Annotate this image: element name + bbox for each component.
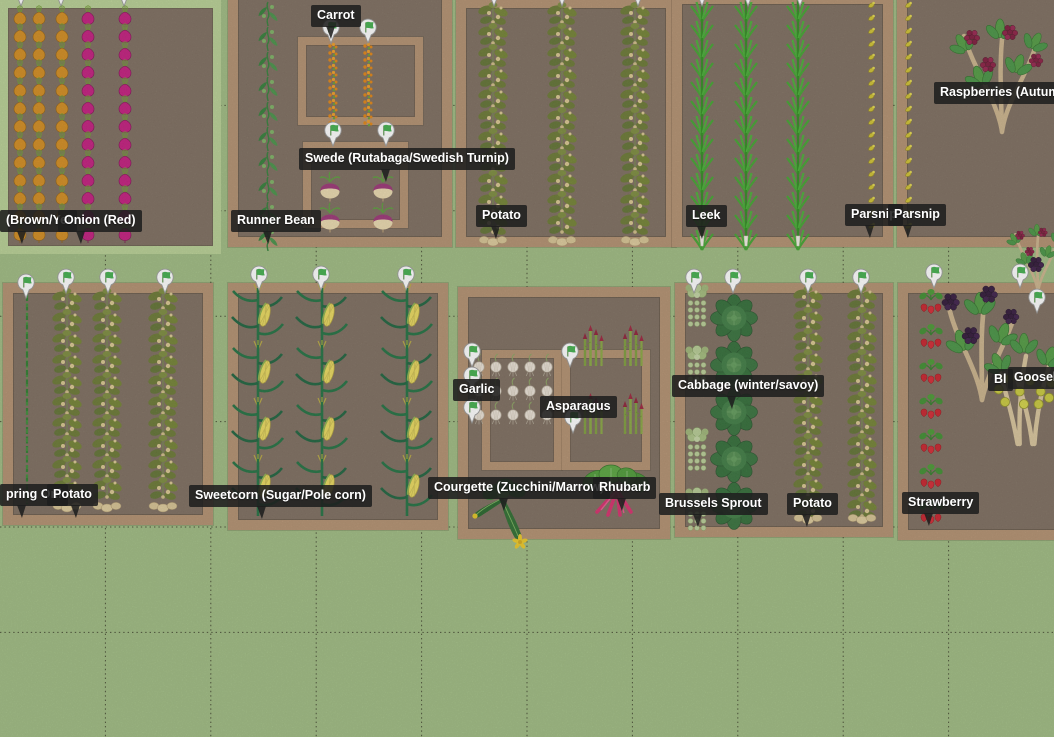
plant-row-potato[interactable] [846,286,878,520]
plant-row-onion_red[interactable] [82,5,94,243]
plant-swede[interactable] [320,172,340,202]
plant-raspberry[interactable] [1003,224,1054,292]
plant-label[interactable]: Strawberry [902,492,979,514]
plant-marker-icon[interactable] [853,269,869,293]
plant-label[interactable]: Runner Bean [231,210,321,232]
plant-label-text: Swede (Rutabaga/Swedish Turnip) [305,151,509,165]
plant-label-text: Courgette (Zucchini/Marrow) [434,480,604,494]
plant-swede[interactable] [373,203,393,233]
plant-marker-icon[interactable] [58,269,74,293]
plant-leekend[interactable] [744,236,748,246]
plant-tubers[interactable] [479,236,507,246]
plant-marker-icon[interactable] [1012,264,1028,288]
plant-marker-icon[interactable] [554,0,570,6]
plant-label-text: Onion (Red) [64,213,136,227]
plant-marker-icon[interactable] [926,264,942,288]
plant-row-potato[interactable] [792,286,824,520]
plant-swede[interactable] [373,172,393,202]
plant-asparagus[interactable] [623,325,644,366]
plant-row-onion_brown[interactable] [56,5,68,243]
plants-layer [0,0,1054,737]
plant-brussels[interactable] [686,428,709,471]
plant-label[interactable]: Potato [47,484,98,506]
plant-label-text: Potato [793,496,832,510]
plant-label[interactable]: Courgette (Zucchini/Marrow) [428,477,610,499]
plant-label[interactable]: Gooseber [1008,367,1054,389]
plant-tubers[interactable] [149,502,177,512]
plant-label-text: Asparagus [546,399,611,413]
plant-raspberry[interactable] [944,19,1053,132]
plant-marker-icon[interactable] [251,266,267,290]
plant-label[interactable]: Onion (Red) [58,210,142,232]
plant-tubers[interactable] [621,236,649,246]
plant-label[interactable]: Potato [787,493,838,515]
plant-row-onion_red[interactable] [119,5,131,243]
plant-row-garlic[interactable] [474,354,552,377]
plant-marker-icon[interactable] [486,0,502,6]
plant-marker-icon[interactable] [725,269,741,293]
plant-marker-icon[interactable] [313,266,329,290]
plant-row-onion_brown[interactable] [14,5,26,243]
plant-label[interactable]: Brussels Sprout [659,493,768,515]
plant-asparagus[interactable] [583,325,604,366]
plant-tubers[interactable] [848,514,876,524]
plant-label-text: Sweetcorn (Sugar/Pole corn) [195,488,366,502]
plant-row-strawberry[interactable] [918,289,944,524]
plant-marker-icon[interactable] [116,0,132,6]
plant-asparagus[interactable] [623,393,644,434]
plant-brussels[interactable] [686,284,709,327]
plant-label[interactable]: Leek [686,205,727,227]
plant-swede[interactable] [320,203,340,233]
plant-label-text: Potato [482,208,521,222]
plant-label-text: Rhubarb [599,480,650,494]
plant-row-onion_brown[interactable] [33,5,45,243]
plant-label-text: Runner Bean [237,213,315,227]
plant-label[interactable]: Raspberries (Autumn Fru [934,82,1054,104]
plant-marker-icon[interactable] [53,0,69,6]
plant-label-text: Parsnip [894,207,940,221]
plant-marker-icon[interactable] [1029,289,1045,313]
plant-row-potato[interactable] [51,288,83,501]
plant-row-potato[interactable] [546,2,578,236]
plant-marker-icon[interactable] [562,343,578,367]
plant-marker-icon[interactable] [18,274,34,298]
plant-label-text: Bl [994,372,1007,386]
plant-label-text: Leek [692,208,721,222]
plant-label[interactable]: Carrot [311,5,361,27]
plant-row-corn[interactable] [232,283,283,516]
plant-row-potato[interactable] [147,288,179,501]
plant-marker-icon[interactable] [100,269,116,293]
plant-label-text: Garlic [459,382,494,396]
plant-row-corn[interactable] [381,283,432,516]
plant-label[interactable]: Swede (Rutabaga/Swedish Turnip) [299,148,515,170]
plant-row-corn[interactable] [296,283,347,516]
plant-marker-icon[interactable] [13,0,29,6]
plant-marker-icon[interactable] [360,19,376,43]
plant-marker-icon[interactable] [325,122,341,146]
plant-marker-icon[interactable] [157,269,173,293]
plant-label-text: Carrot [317,8,355,22]
plant-label[interactable]: Rhubarb [593,477,656,499]
plant-row-leek[interactable] [787,0,809,250]
plant-marker-icon[interactable] [398,266,414,290]
plant-row-parsnip[interactable] [906,2,912,229]
plant-row-potato[interactable] [619,2,651,236]
plant-label[interactable]: Sweetcorn (Sugar/Pole corn) [189,485,372,507]
plant-row-potato[interactable] [477,2,509,236]
garden-plan-canvas[interactable]: (Brown/YelOnion (Red)CarrotSwede (Rutaba… [0,0,1054,737]
plant-row-leek[interactable] [735,0,757,250]
plant-label-text: Strawberry [908,495,973,509]
plant-label-text: Potato [53,487,92,501]
plant-label-text: Raspberries (Autumn Fru [940,85,1054,99]
plant-leekend[interactable] [796,236,800,246]
plant-label[interactable]: Cabbage (winter/savoy) [672,375,824,397]
plant-marker-icon[interactable] [378,122,394,146]
plant-row-carrot[interactable] [363,43,372,127]
plant-marker-icon[interactable] [800,269,816,293]
plant-label[interactable]: Garlic [453,379,500,401]
plant-tubers[interactable] [548,236,576,246]
plant-label-text: Cabbage (winter/savoy) [678,378,818,392]
plant-row-carrot[interactable] [328,43,337,127]
plant-label[interactable]: Asparagus [540,396,617,418]
plant-label-text: Gooseber [1014,370,1054,384]
plant-row-potato[interactable] [91,288,123,501]
plant-row-parsnip[interactable] [869,2,875,229]
plant-label[interactable]: Parsnip [888,204,946,226]
plant-label-text: Brussels Sprout [665,496,762,510]
plant-label[interactable]: Potato [476,205,527,227]
